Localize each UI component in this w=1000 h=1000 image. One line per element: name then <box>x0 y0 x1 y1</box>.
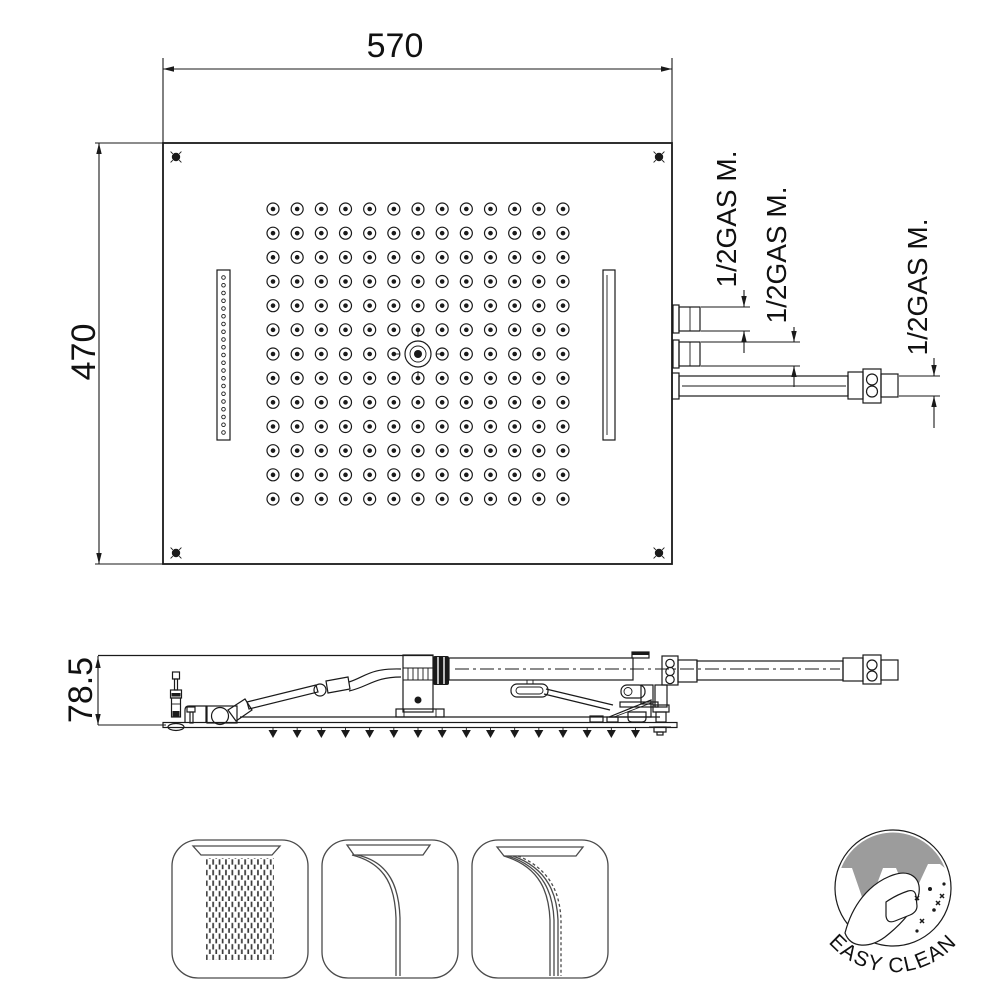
dimension-78-5-label: 78.5 <box>62 657 100 723</box>
dimension-570-label: 570 <box>367 27 424 65</box>
dimension-470-label: 470 <box>65 324 103 381</box>
shower-head-technical-drawing: 570 470 1/2GAS M. <box>0 0 1000 1000</box>
gas-connection-label-1: 1/2GAS M. <box>711 151 742 288</box>
gas-connection-label-2: 1/2GAS M. <box>761 187 792 324</box>
gas-connection-label-3: 1/2GAS M. <box>902 219 933 356</box>
